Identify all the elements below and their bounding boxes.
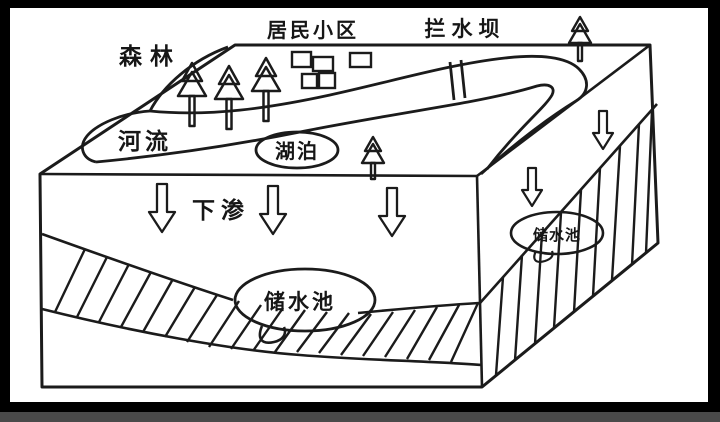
dam-label: 拦水坝 <box>425 17 506 41</box>
forest-label: 森林 <box>119 43 181 69</box>
reservoir-front-label: 储水池 <box>264 290 336 314</box>
infiltration-label: 下渗 <box>192 197 250 223</box>
screenshot-root: 森林 居民小区 拦水坝 河流 湖泊 下渗 储水池 储水池 <box>0 0 720 422</box>
frame-bottom-strip <box>0 412 720 422</box>
reservoir-right-label: 储水池 <box>533 226 581 244</box>
river-label: 河流 <box>118 128 172 154</box>
residential-area-label: 居民小区 <box>267 19 359 42</box>
lake-label: 湖泊 <box>275 140 319 163</box>
